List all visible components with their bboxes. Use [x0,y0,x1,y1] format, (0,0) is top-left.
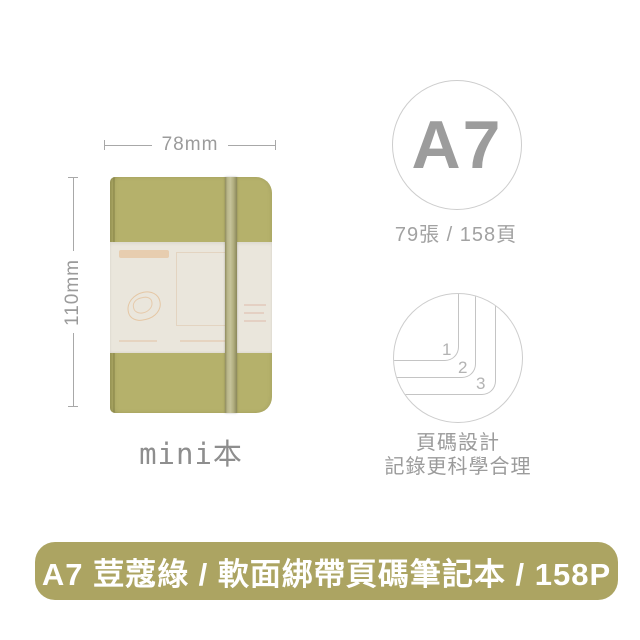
belly-band-text-line [244,312,264,314]
width-dimension: 78mm [104,133,276,157]
page-number-caption-line1: 頁碼設計 [358,431,558,455]
width-dimension-label: 78mm [162,134,219,156]
sheets-pages-label: 79張 / 158頁 [366,218,546,247]
dimension-tick [275,140,276,150]
product-infographic: 78mm 110mm mini本 A7 79張 / 158頁 [0,0,640,640]
size-badge-circle: A7 [392,80,522,210]
belly-band-text-line [119,340,157,342]
belly-band-sketch-decoration [124,289,163,323]
dimension-line [228,145,275,146]
belly-band-text-line [244,304,266,306]
size-badge-label: A7 [412,106,503,184]
belly-band-wrap [110,242,272,353]
page-number-caption: 頁碼設計 記錄更科學合理 [358,431,558,479]
elastic-band [225,177,237,413]
height-dimension-label: 110mm [62,259,84,326]
page-number-circle: 1 2 3 [393,293,523,423]
belly-band-text-line [244,320,266,322]
notebook-illustration [110,177,272,413]
belly-band-logo-mark [119,250,169,258]
dimension-line [105,145,152,146]
page-number-caption-line2: 記錄更科學合理 [358,455,558,479]
dimension-tick [68,406,78,407]
dimension-line [73,333,74,406]
page-number-2: 2 [458,358,467,378]
height-dimension: 110mm [65,177,81,407]
page-number-3: 3 [476,374,485,394]
product-title-banner: A7 荳蔻綠 / 軟面綁帶頁碼筆記本 / 158P [35,542,618,600]
product-title-text: A7 荳蔻綠 / 軟面綁帶頁碼筆記本 / 158P [42,549,611,594]
notebook-size-caption: mini本 [110,431,272,473]
page-number-1: 1 [442,340,451,360]
dimension-line [73,178,74,251]
